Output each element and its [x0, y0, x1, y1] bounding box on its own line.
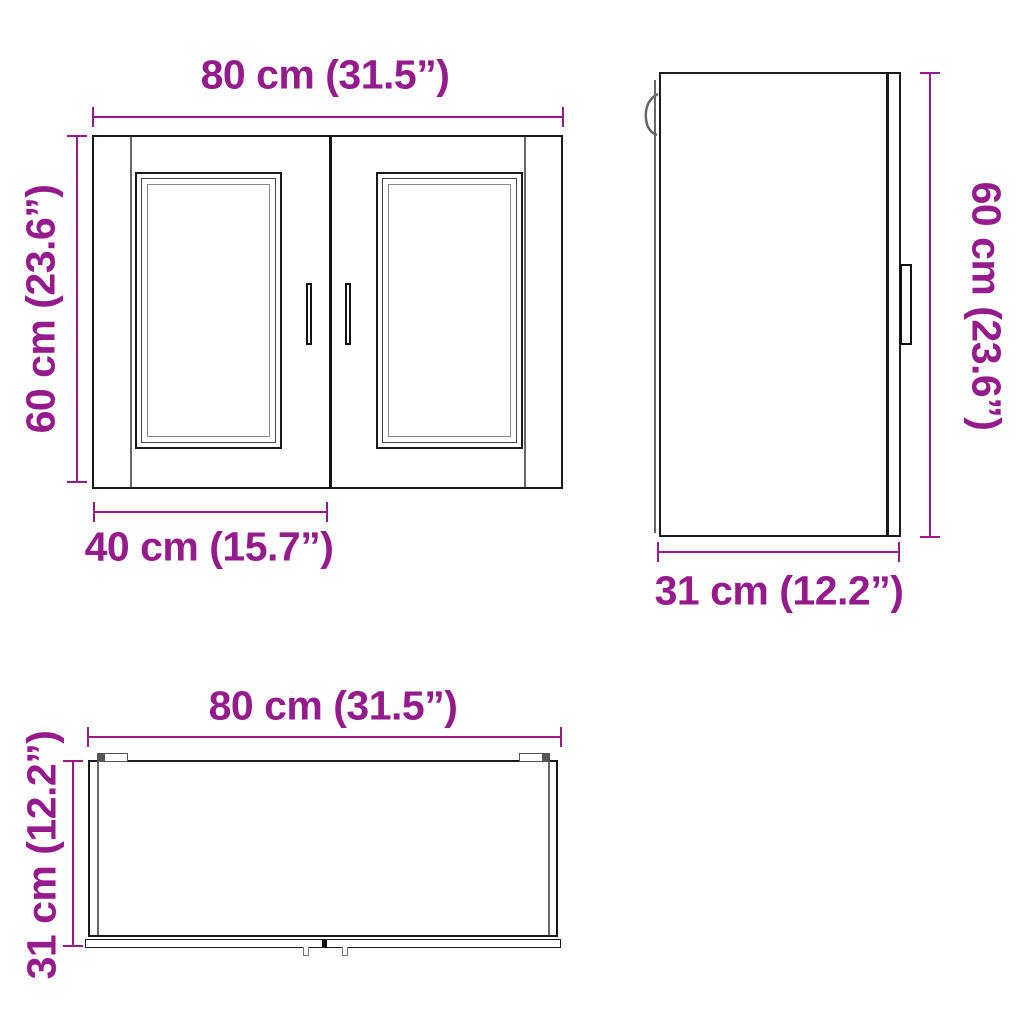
front-width-dimension-line	[92, 116, 564, 118]
front-door-width-dimension-line	[93, 511, 328, 513]
front-center-door-gap	[329, 137, 332, 487]
top-depth-dimension-line	[72, 760, 74, 947]
left-door-handle	[306, 283, 312, 345]
front-door-width-label: 40 cm (15.7”)	[85, 527, 334, 568]
right-door-handle	[345, 283, 351, 345]
side-cabinet-outline	[659, 72, 888, 537]
side-door-handle	[900, 264, 912, 345]
front-right-door-edge	[524, 137, 526, 487]
left-door-panel	[147, 184, 270, 437]
front-height-dimension-line	[76, 135, 78, 483]
top-depth-label: 31 cm (12.2”)	[22, 731, 63, 980]
wall-mount-hook-icon	[642, 92, 662, 138]
front-left-door-edge	[130, 137, 132, 487]
top-cabinet-outline	[88, 760, 558, 937]
top-door-gap-mark	[322, 939, 327, 948]
top-width-label: 80 cm (31.5”)	[209, 686, 458, 727]
top-right-side-panel	[548, 762, 550, 935]
mounting-bracket-right-cap	[542, 753, 550, 762]
right-door-panel	[388, 184, 511, 437]
side-door-edge	[886, 72, 901, 537]
side-height-label: 60 cm (23.6”)	[966, 182, 1007, 431]
front-height-label: 60 cm (23.6”)	[21, 185, 62, 434]
cabinet-dimension-diagram: 80 cm (31.5”) 60 cm (23.6”) 40 cm (15.7”…	[0, 0, 1024, 1024]
top-right-handle-stub	[342, 947, 348, 956]
top-left-side-panel	[97, 762, 99, 935]
side-back-edge	[654, 80, 656, 533]
side-height-dimension-line	[929, 72, 931, 538]
top-width-dimension-line	[87, 736, 562, 738]
top-left-handle-stub	[303, 947, 309, 956]
front-width-label: 80 cm (31.5”)	[201, 55, 450, 96]
side-depth-dimension-line	[657, 551, 900, 553]
mounting-bracket-left-cap	[97, 753, 105, 762]
side-depth-label: 31 cm (12.2”)	[655, 571, 904, 612]
